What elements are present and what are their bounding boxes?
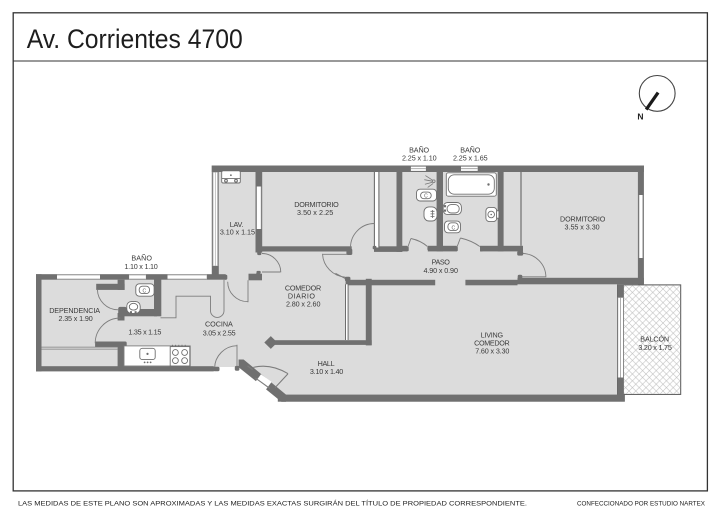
svg-text:1.35 x 1.15: 1.35 x 1.15	[128, 328, 161, 337]
svg-text:3.55 x 3.30: 3.55 x 3.30	[565, 223, 600, 232]
svg-text:Av. Corrientes 4700: Av. Corrientes 4700	[27, 24, 243, 54]
svg-text:3.05 x 2.55: 3.05 x 2.55	[203, 328, 236, 337]
svg-text:BALCÓN: BALCÓN	[640, 334, 669, 343]
svg-text:4.90 x 0.90: 4.90 x 0.90	[423, 266, 458, 275]
svg-text:N: N	[637, 112, 643, 122]
svg-text:2.80 x 2.60: 2.80 x 2.60	[286, 300, 321, 309]
svg-text:C: C	[451, 225, 455, 231]
svg-text:C: C	[142, 288, 146, 294]
svg-text:2.25 x 1.65: 2.25 x 1.65	[453, 153, 488, 162]
svg-text:C: C	[424, 194, 428, 200]
svg-text:7.60 x 3.30: 7.60 x 3.30	[475, 346, 509, 355]
svg-text:2.35 x 1.90: 2.35 x 1.90	[58, 314, 93, 323]
svg-text:3.50 x 2.25: 3.50 x 2.25	[297, 208, 334, 217]
svg-text:3.10 x 1.15: 3.10 x 1.15	[220, 228, 255, 237]
svg-text:CONFECCIONADO POR ESTUDIO NART: CONFECCIONADO POR ESTUDIO NARTEX	[577, 501, 706, 508]
svg-text:LAS MEDIDAS DE ESTE PLANO SON: LAS MEDIDAS DE ESTE PLANO SON APROXIMADA…	[18, 499, 527, 508]
svg-text:PASO: PASO	[432, 257, 451, 266]
svg-text:3.20 x 1.75: 3.20 x 1.75	[638, 343, 672, 352]
svg-text:2.25 x 1.10: 2.25 x 1.10	[402, 153, 437, 162]
svg-text:3.10 x 1.40: 3.10 x 1.40	[310, 367, 344, 376]
svg-text:COCINA: COCINA	[205, 319, 233, 328]
svg-text:1.10 x 1.10: 1.10 x 1.10	[124, 262, 158, 271]
